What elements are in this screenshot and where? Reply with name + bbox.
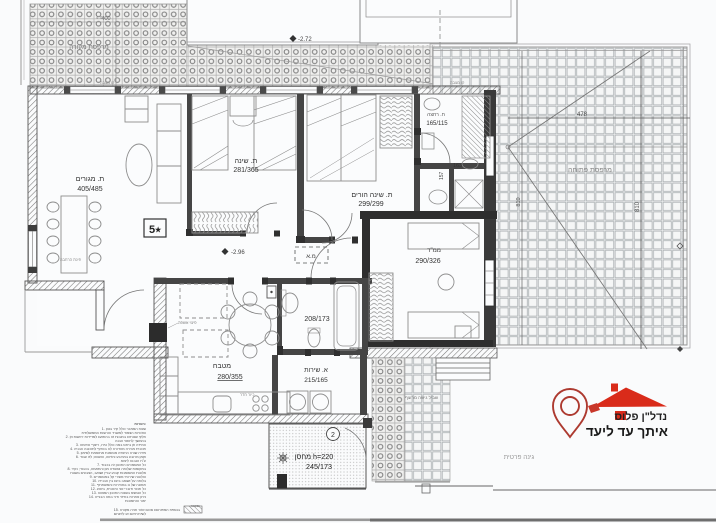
svg-text:290/326: 290/326 — [415, 258, 440, 265]
svg-text:245/173: 245/173 — [306, 462, 332, 471]
svg-text:-2.96: -2.96 — [231, 250, 245, 256]
svg-text:ת. מגורים: ת. מגורים — [76, 176, 105, 183]
svg-text:מחסן h=220: מחסן h=220 — [295, 452, 333, 461]
svg-text:שביל גישה מרוצף: שביל גישה מרוצף — [405, 395, 439, 400]
svg-text:4.05: 4.05 — [96, 15, 105, 20]
svg-text:405/485: 405/485 — [77, 186, 102, 193]
svg-text:810: 810 — [635, 201, 641, 212]
svg-text:נדל"ן פלוס: נדל"ן פלוס — [615, 410, 668, 423]
svg-text:281/365: 281/365 — [233, 167, 258, 174]
svg-text:810: 810 — [516, 197, 522, 206]
svg-text:קו מצבה: קו מצבה — [450, 80, 465, 85]
svg-text:163: 163 — [453, 163, 462, 169]
svg-text:קו מצבה: קו מצבה — [100, 80, 115, 85]
svg-text:ח. רחצה: ח. רחצה — [427, 112, 445, 118]
svg-text:ת. שינה: ת. שינה — [235, 158, 258, 165]
svg-text:ת. שינה הורים: ת. שינה הורים — [351, 192, 392, 199]
svg-text:פינוי אשפה: פינוי אשפה — [178, 320, 197, 325]
svg-text:208/173: 208/173 — [304, 316, 329, 323]
svg-text:גינה פרטית: גינה פרטית — [504, 454, 535, 461]
svg-text:280/355: 280/355 — [217, 374, 242, 381]
svg-text:ממ"ד: ממ"ד — [427, 248, 441, 254]
svg-text:157: 157 — [439, 171, 445, 180]
svg-text:299/299: 299/299 — [358, 201, 383, 208]
svg-text:לשירותיהם או לזיווחם: לשירותיהם או לזיווחם — [114, 512, 146, 516]
svg-text:215/165: 215/165 — [304, 377, 328, 384]
svg-text:מרפסת מקורה: מרפסת מקורה — [69, 44, 109, 51]
svg-text:2: 2 — [331, 432, 335, 439]
svg-text:478: 478 — [577, 112, 588, 118]
svg-text:כיור חדר: כיור חדר — [240, 392, 254, 397]
svg-text:יאור והתמונות: יאור והתמונות — [125, 499, 146, 503]
svg-text:מטבח: מטבח — [213, 363, 231, 370]
svg-text:מרפסת פתוחה: מרפסת פתוחה — [568, 167, 612, 174]
svg-text:הערות:: הערות: — [134, 422, 146, 426]
svg-text:פינת הרחבה: פינת הרחבה — [60, 257, 82, 262]
svg-text:א. שירות: א. שירות — [304, 367, 328, 374]
svg-text:165/115: 165/115 — [426, 121, 448, 127]
svg-text:5٭: 5٭ — [149, 224, 162, 236]
svg-text:מ.א: מ.א — [306, 254, 316, 260]
svg-text:-2.72: -2.72 — [298, 37, 312, 43]
svg-text:איתך עד ליעד: איתך עד ליעד — [586, 424, 668, 439]
